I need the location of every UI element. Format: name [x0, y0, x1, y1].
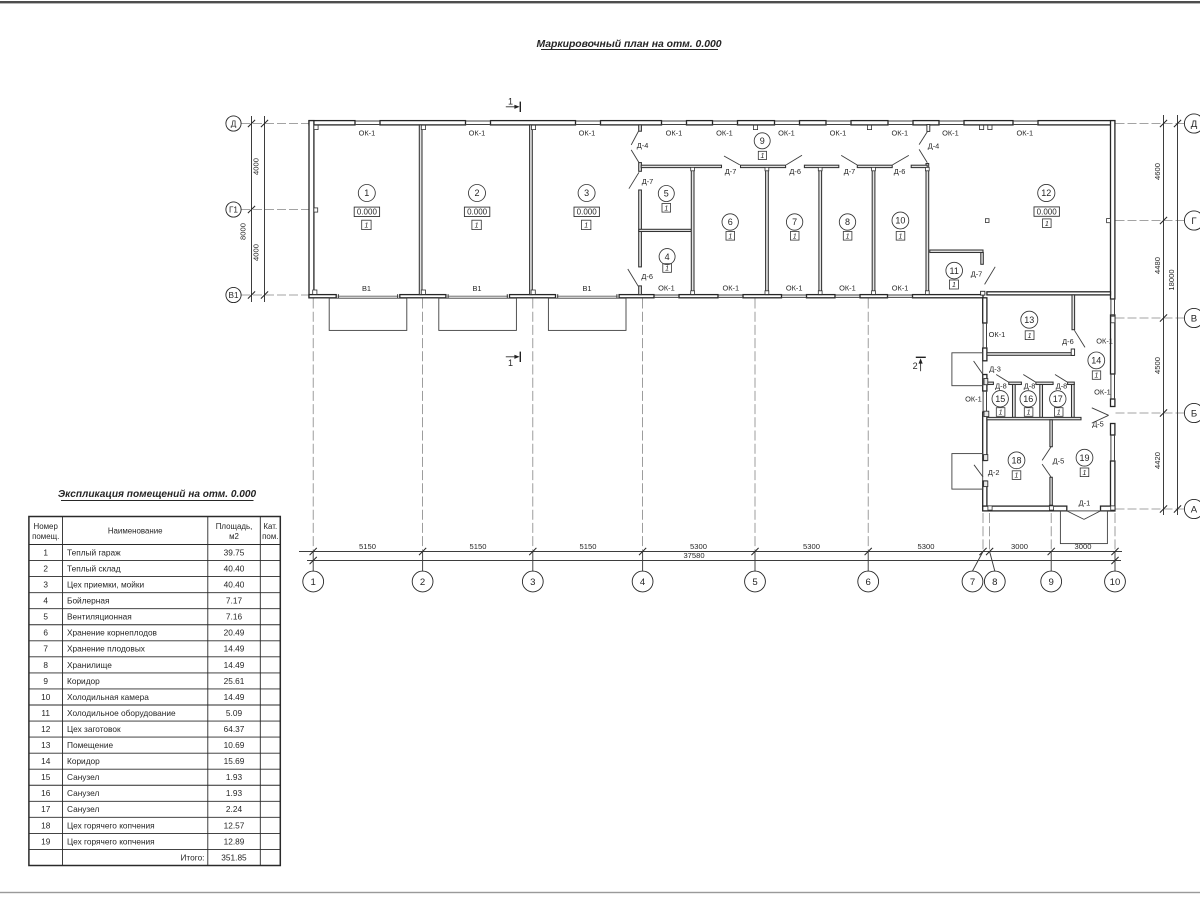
svg-text:1: 1: [1015, 473, 1019, 480]
svg-text:помещ.: помещ.: [32, 532, 59, 541]
svg-text:Номер: Номер: [34, 522, 59, 531]
svg-text:4: 4: [43, 596, 48, 606]
svg-text:1: 1: [793, 233, 797, 240]
svg-text:15: 15: [995, 394, 1005, 404]
svg-text:1: 1: [508, 96, 513, 106]
svg-text:12.89: 12.89: [224, 836, 245, 846]
svg-text:В1: В1: [582, 284, 591, 293]
svg-text:15.69: 15.69: [224, 756, 245, 766]
svg-text:1: 1: [1028, 333, 1032, 340]
svg-text:1: 1: [364, 223, 368, 230]
svg-text:ОК-1: ОК-1: [786, 283, 803, 292]
svg-text:7: 7: [43, 644, 48, 654]
svg-text:9: 9: [43, 676, 48, 686]
svg-text:Вентиляционная: Вентиляционная: [67, 612, 132, 622]
svg-text:м2: м2: [229, 532, 239, 541]
svg-text:64.37: 64.37: [224, 724, 245, 734]
svg-text:Холодильная камера: Холодильная камера: [67, 692, 149, 702]
svg-text:2.24: 2.24: [226, 804, 243, 814]
svg-text:ОК-1: ОК-1: [716, 128, 733, 137]
svg-text:8000: 8000: [239, 223, 248, 240]
svg-text:12.57: 12.57: [224, 820, 245, 830]
svg-text:4000: 4000: [252, 244, 261, 261]
svg-text:ОК-1: ОК-1: [891, 128, 908, 137]
svg-text:1: 1: [728, 233, 732, 240]
svg-text:Цех заготовок: Цех заготовок: [67, 724, 121, 734]
svg-text:14.49: 14.49: [224, 692, 245, 702]
svg-text:Г: Г: [1191, 216, 1197, 227]
svg-text:Хранение корнеплодов: Хранение корнеплодов: [67, 628, 158, 638]
svg-text:1: 1: [999, 410, 1003, 417]
svg-text:Д-8: Д-8: [1024, 382, 1036, 391]
svg-text:2: 2: [474, 188, 479, 198]
svg-text:ОК-1: ОК-1: [658, 283, 675, 292]
svg-text:4600: 4600: [1153, 163, 1162, 180]
svg-text:14: 14: [41, 756, 51, 766]
svg-text:4: 4: [640, 577, 646, 588]
svg-text:7.17: 7.17: [226, 596, 243, 606]
svg-text:13: 13: [41, 740, 51, 750]
svg-text:3: 3: [530, 577, 535, 588]
svg-text:Хранение плодовых: Хранение плодовых: [67, 644, 146, 654]
svg-text:Холодильное оборудование: Холодильное оборудование: [67, 708, 176, 718]
svg-text:Экспликация помещений на отм.: Экспликация помещений на отм. 0.000: [58, 489, 257, 500]
svg-text:1: 1: [899, 233, 903, 240]
svg-text:18: 18: [41, 820, 51, 830]
svg-text:ОК-1: ОК-1: [1016, 128, 1033, 137]
svg-text:12: 12: [1041, 188, 1051, 198]
svg-text:0.000: 0.000: [357, 208, 378, 217]
svg-text:Маркировочный план на отм. 0.0: Маркировочный план на отм. 0.000: [536, 39, 721, 50]
svg-text:1: 1: [43, 547, 48, 557]
svg-text:Д-2: Д-2: [988, 468, 1000, 477]
svg-text:5300: 5300: [803, 542, 820, 551]
svg-text:3000: 3000: [1075, 542, 1092, 551]
svg-text:Д-7: Д-7: [844, 167, 856, 176]
svg-text:10: 10: [895, 216, 905, 226]
svg-text:Теплый склад: Теплый склад: [67, 563, 121, 573]
svg-text:7: 7: [792, 217, 797, 227]
svg-text:14: 14: [1091, 356, 1101, 366]
svg-text:11: 11: [41, 708, 50, 718]
svg-text:2: 2: [43, 563, 48, 573]
svg-text:1: 1: [1045, 221, 1049, 228]
svg-text:4000: 4000: [252, 158, 261, 175]
svg-text:В1: В1: [362, 284, 371, 293]
svg-text:ОК-1: ОК-1: [989, 330, 1006, 339]
svg-text:ОК-1: ОК-1: [1096, 337, 1113, 346]
svg-text:В1: В1: [228, 291, 238, 300]
svg-text:8: 8: [43, 660, 48, 670]
svg-text:19: 19: [1079, 453, 1089, 463]
svg-text:10.69: 10.69: [224, 740, 245, 750]
svg-text:8: 8: [992, 577, 997, 588]
svg-text:25.61: 25.61: [224, 676, 245, 686]
svg-text:6: 6: [728, 217, 733, 227]
svg-text:Цех приемки, мойки: Цех приемки, мойки: [67, 580, 145, 590]
svg-text:5: 5: [752, 577, 757, 588]
svg-text:Д-4: Д-4: [637, 141, 649, 150]
svg-text:7: 7: [970, 577, 975, 588]
svg-text:5150: 5150: [359, 542, 376, 551]
svg-text:6: 6: [43, 628, 48, 638]
svg-text:Санузел: Санузел: [67, 772, 99, 782]
svg-text:Коридор: Коридор: [67, 676, 100, 686]
svg-text:4: 4: [665, 252, 670, 262]
svg-text:1: 1: [508, 358, 513, 368]
svg-text:10: 10: [41, 692, 51, 702]
svg-text:Итого:: Итого:: [180, 852, 204, 862]
svg-text:Наименование: Наименование: [108, 527, 163, 536]
svg-text:5.09: 5.09: [226, 708, 243, 718]
svg-text:Цех горячего копчения: Цех горячего копчения: [67, 836, 155, 846]
svg-text:1.93: 1.93: [226, 788, 243, 798]
svg-text:1: 1: [364, 188, 369, 198]
svg-text:Д-1: Д-1: [1079, 499, 1091, 508]
svg-text:ОК-1: ОК-1: [830, 128, 847, 137]
svg-text:Д-6: Д-6: [894, 167, 906, 176]
svg-text:ОК-1: ОК-1: [839, 283, 856, 292]
svg-text:ОК-1: ОК-1: [579, 128, 596, 137]
svg-text:Кат.: Кат.: [263, 522, 277, 531]
svg-text:18000: 18000: [1167, 269, 1176, 290]
svg-text:Хранилище: Хранилище: [67, 660, 112, 670]
svg-text:3: 3: [584, 188, 589, 198]
svg-text:0.000: 0.000: [467, 208, 488, 217]
svg-text:Помещение: Помещение: [67, 740, 113, 750]
svg-text:1: 1: [665, 266, 669, 273]
svg-text:Бойлерная: Бойлерная: [67, 596, 109, 606]
svg-text:40.40: 40.40: [224, 563, 245, 573]
svg-text:3: 3: [43, 580, 48, 590]
svg-text:Д-6: Д-6: [789, 167, 801, 176]
svg-text:Д: Д: [1191, 119, 1198, 130]
svg-text:6: 6: [866, 577, 871, 588]
svg-text:1: 1: [1095, 373, 1099, 380]
svg-text:14.49: 14.49: [224, 644, 245, 654]
svg-text:Д-7: Д-7: [971, 270, 983, 279]
svg-text:1: 1: [1057, 410, 1061, 417]
svg-text:1: 1: [311, 577, 316, 588]
svg-text:40.40: 40.40: [224, 580, 245, 590]
svg-text:Д-6: Д-6: [1062, 337, 1074, 346]
svg-text:Д-8: Д-8: [1056, 382, 1068, 391]
svg-text:20.49: 20.49: [224, 628, 245, 638]
svg-text:5150: 5150: [470, 542, 487, 551]
svg-text:7.16: 7.16: [226, 612, 243, 622]
svg-text:37580: 37580: [683, 551, 704, 560]
svg-text:13: 13: [1024, 315, 1034, 325]
svg-text:ОК-1: ОК-1: [942, 128, 959, 137]
svg-text:12: 12: [41, 724, 51, 734]
svg-text:19: 19: [41, 836, 51, 846]
svg-text:351.85: 351.85: [221, 852, 247, 862]
svg-text:1.93: 1.93: [226, 772, 243, 782]
svg-text:5: 5: [43, 612, 48, 622]
svg-text:Д-8: Д-8: [995, 382, 1007, 391]
svg-text:ОК-1: ОК-1: [1094, 388, 1111, 397]
svg-text:ОК-1: ОК-1: [469, 128, 486, 137]
svg-text:4480: 4480: [1153, 257, 1162, 274]
svg-text:18: 18: [1011, 456, 1021, 466]
svg-text:Г1: Г1: [229, 205, 238, 214]
svg-text:2: 2: [420, 577, 425, 588]
svg-text:9: 9: [760, 136, 765, 146]
svg-text:Теплый гараж: Теплый гараж: [67, 547, 121, 557]
svg-text:16: 16: [41, 788, 51, 798]
svg-text:17: 17: [41, 804, 51, 814]
svg-text:1: 1: [846, 233, 850, 240]
svg-text:Санузел: Санузел: [67, 804, 99, 814]
svg-text:2: 2: [913, 361, 918, 371]
svg-text:0.000: 0.000: [577, 208, 598, 217]
svg-text:5300: 5300: [690, 542, 707, 551]
svg-text:3000: 3000: [1011, 542, 1028, 551]
svg-text:Д-4: Д-4: [928, 142, 940, 151]
svg-text:Д-5: Д-5: [1053, 457, 1065, 466]
svg-text:9: 9: [1049, 577, 1054, 588]
svg-text:1: 1: [760, 153, 764, 160]
svg-text:5150: 5150: [580, 542, 597, 551]
svg-text:10: 10: [1110, 577, 1121, 588]
svg-text:1: 1: [664, 205, 668, 212]
svg-text:14.49: 14.49: [224, 660, 245, 670]
svg-text:5: 5: [664, 189, 669, 199]
svg-text:0.000: 0.000: [1037, 208, 1058, 217]
svg-text:Д-7: Д-7: [642, 177, 654, 186]
svg-text:Коридор: Коридор: [67, 756, 100, 766]
svg-text:Санузел: Санузел: [67, 788, 99, 798]
svg-text:17: 17: [1053, 394, 1063, 404]
svg-text:1: 1: [584, 223, 588, 230]
svg-text:5300: 5300: [918, 542, 935, 551]
svg-text:ОК-1: ОК-1: [359, 128, 376, 137]
svg-text:16: 16: [1023, 394, 1033, 404]
svg-text:Д-5: Д-5: [1092, 419, 1104, 428]
svg-text:4500: 4500: [1153, 357, 1162, 374]
svg-text:пом.: пом.: [262, 532, 278, 541]
svg-text:1: 1: [1083, 470, 1087, 477]
svg-text:ОК-1: ОК-1: [722, 283, 739, 292]
svg-text:В1: В1: [472, 284, 481, 293]
svg-text:Д-7: Д-7: [725, 167, 737, 176]
svg-text:ОК-1: ОК-1: [965, 394, 982, 403]
svg-text:11: 11: [950, 266, 959, 276]
svg-text:ОК-1: ОК-1: [778, 128, 795, 137]
svg-text:Площадь,: Площадь,: [216, 522, 253, 531]
svg-text:1: 1: [952, 282, 956, 289]
svg-text:1: 1: [475, 223, 479, 230]
svg-text:Б: Б: [1191, 408, 1197, 419]
svg-text:39.75: 39.75: [224, 547, 245, 557]
svg-text:Д-3: Д-3: [989, 365, 1001, 374]
svg-text:ОК-1: ОК-1: [892, 283, 909, 292]
svg-text:Цех горячего копчения: Цех горячего копчения: [67, 820, 155, 830]
svg-text:Д-6: Д-6: [641, 272, 653, 281]
svg-text:Д: Д: [231, 119, 237, 128]
svg-text:8: 8: [845, 217, 850, 227]
svg-text:ОК-1: ОК-1: [666, 128, 683, 137]
svg-text:1: 1: [1027, 410, 1031, 417]
svg-text:В: В: [1191, 313, 1197, 324]
svg-text:А: А: [1191, 504, 1198, 515]
svg-text:4420: 4420: [1153, 452, 1162, 469]
svg-text:15: 15: [41, 772, 51, 782]
